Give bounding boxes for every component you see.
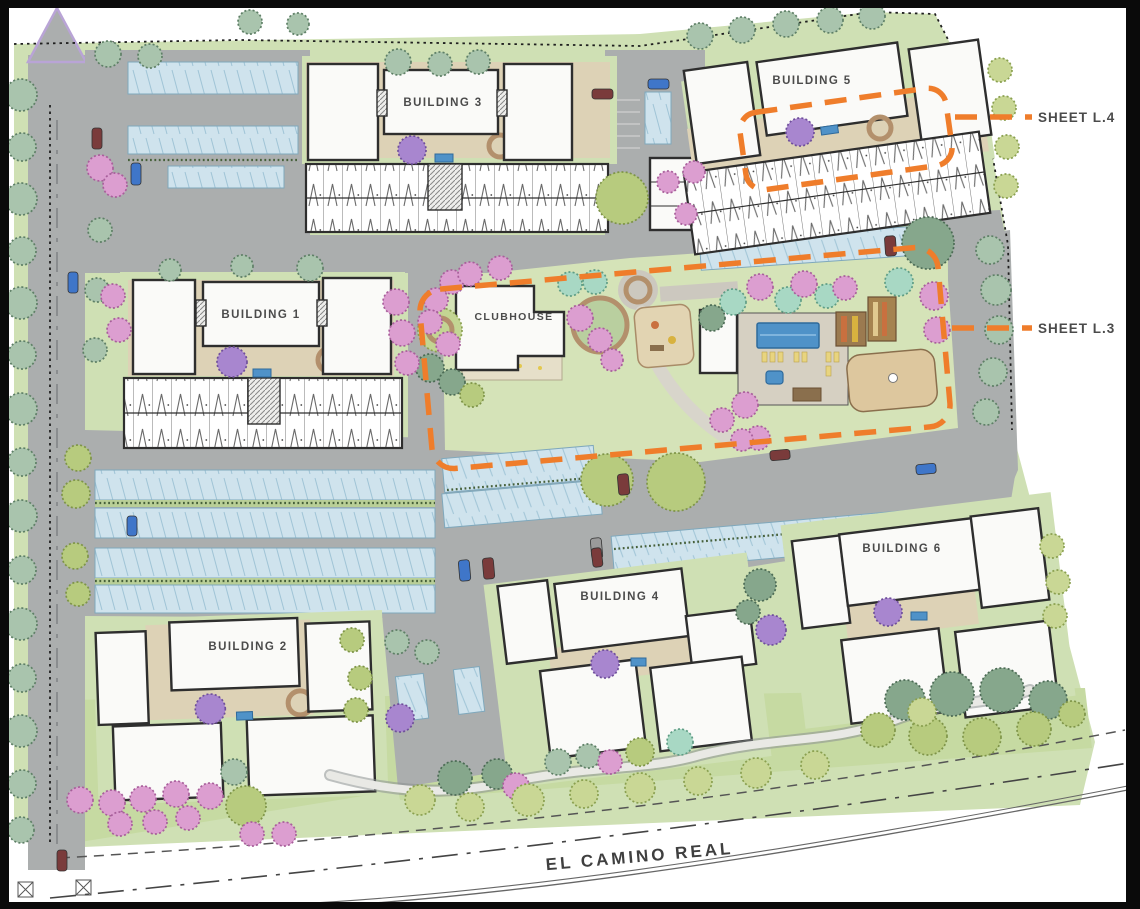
sheet-l3-label: SHEET L.3 — [1038, 321, 1115, 336]
clubhouse-label: CLUBHOUSE — [474, 311, 553, 323]
building-2-label: BUILDING 2 — [208, 641, 287, 653]
site-plan-page: CLUBHOUSE — [0, 0, 1140, 909]
building-6-label: BUILDING 6 — [862, 543, 941, 555]
building-4-label: BUILDING 4 — [580, 591, 659, 603]
frame-left — [0, 0, 9, 909]
canopy-east-of-building3 — [645, 92, 671, 144]
frame-bottom — [0, 902, 1140, 909]
frame-top — [0, 0, 1140, 8]
building-3-complex: BUILDING 3 — [302, 56, 617, 232]
spa — [766, 371, 783, 384]
building-5-label: BUILDING 5 — [772, 75, 851, 87]
sheet-l4-label: SHEET L.4 — [1038, 110, 1115, 125]
playground — [633, 304, 694, 369]
pergola-1 — [836, 312, 866, 346]
pergola-3 — [793, 388, 821, 401]
building-3-label: BUILDING 3 — [403, 97, 482, 109]
building-1-label: BUILDING 1 — [221, 309, 300, 321]
frame-right — [1126, 0, 1140, 909]
site-plan-drawing: CLUBHOUSE — [0, 0, 1140, 909]
building-1-complex: BUILDING 1 — [120, 272, 405, 448]
